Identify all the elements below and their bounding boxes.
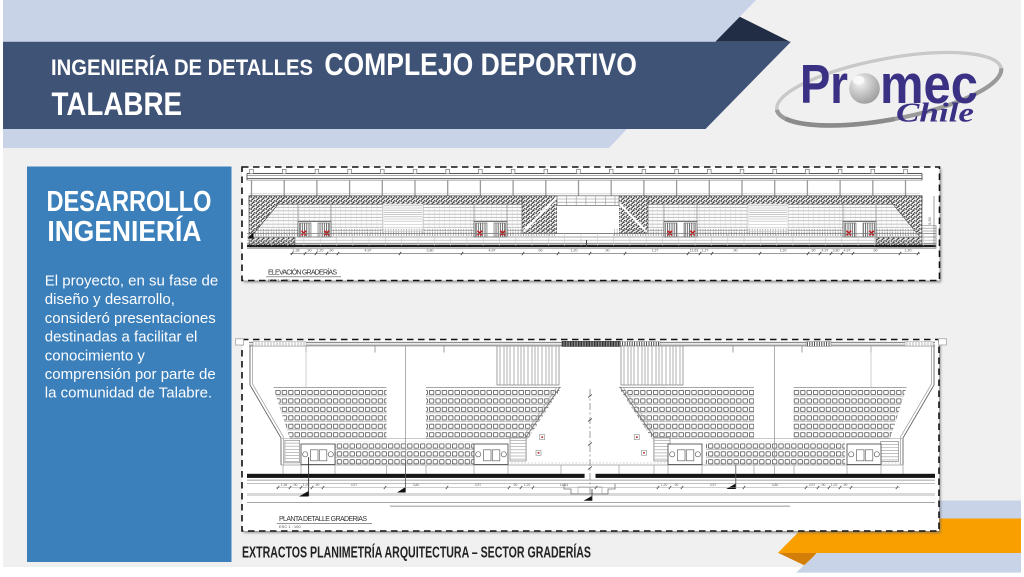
svg-text:conocimiento y: conocimiento y (45, 347, 146, 364)
svg-text:.90: .90 (307, 249, 312, 253)
svg-text:1,20: 1,20 (831, 483, 838, 487)
svg-text:3,80: 3,80 (833, 249, 840, 253)
svg-text:PLANTA DETALLE GRADERIAS: PLANTA DETALLE GRADERIAS (279, 516, 367, 523)
svg-text:.90: .90 (329, 249, 334, 253)
svg-text:.90: .90 (674, 483, 679, 487)
svg-text:1,27: 1,27 (702, 249, 709, 253)
svg-text:4,97: 4,97 (351, 483, 358, 487)
svg-text:.90: .90 (733, 249, 738, 253)
svg-text:COMPLEJO DEPORTIVO: COMPLEJO DEPORTIVO (324, 46, 637, 82)
svg-text:3,80: 3,80 (427, 249, 434, 253)
svg-text:4,97: 4,97 (710, 483, 717, 487)
svg-text:1,20: 1,20 (905, 249, 912, 253)
svg-text:11,63: 11,63 (690, 249, 699, 253)
svg-text:.90: .90 (293, 483, 298, 487)
svg-text:1,27: 1,27 (652, 249, 659, 253)
svg-text:INGENIERÍA DE DETALLES: INGENIERÍA DE DETALLES (51, 55, 313, 80)
svg-text:EXTRACTOS PLANIMETRÍA ARQUITEC: EXTRACTOS PLANIMETRÍA ARQUITECTURA – SEC… (242, 543, 591, 562)
svg-text:El proyecto, en su fase de: El proyecto, en su fase de (45, 273, 218, 290)
svg-text:1,20: 1,20 (780, 249, 787, 253)
svg-text:.90: .90 (538, 249, 543, 253)
svg-text:diseño y desarrollo,: diseño y desarrollo, (45, 291, 175, 308)
svg-text:1,20: 1,20 (303, 483, 310, 487)
svg-text:1,20: 1,20 (524, 483, 531, 487)
svg-text:4,97: 4,97 (489, 249, 496, 253)
svg-text:1,38: 1,38 (281, 483, 288, 487)
svg-text:1,20: 1,20 (661, 483, 668, 487)
svg-text:1,38: 1,38 (293, 249, 300, 253)
svg-text:1,20: 1,20 (571, 249, 578, 253)
svg-text:.90: .90 (605, 249, 610, 253)
svg-text:INGENIERÍA: INGENIERÍA (47, 216, 201, 248)
svg-text:11,63: 11,63 (560, 483, 568, 487)
svg-text:ESC 1 : 100: ESC 1 : 100 (268, 278, 290, 283)
svg-text:Chile: Chile (896, 98, 974, 128)
svg-text:4,97: 4,97 (475, 483, 482, 487)
svg-text:Pr: Pr (800, 53, 848, 115)
svg-text:4,97: 4,97 (844, 249, 851, 253)
svg-text:consideró presentaciones: consideró presentaciones (45, 310, 216, 327)
svg-text:4,97: 4,97 (822, 249, 829, 253)
svg-text:.90: .90 (811, 249, 816, 253)
svg-text:.90: .90 (843, 483, 848, 487)
svg-text:.90: .90 (315, 483, 320, 487)
svg-text:TALABRE: TALABRE (52, 86, 183, 122)
svg-text:.90: .90 (873, 249, 878, 253)
svg-text:.90: .90 (513, 483, 518, 487)
svg-text:5,50: 5,50 (928, 217, 932, 224)
svg-text:3,80: 3,80 (413, 483, 420, 487)
svg-text:4,97: 4,97 (809, 483, 816, 487)
svg-text:DESARROLLO: DESARROLLO (47, 186, 212, 218)
svg-text:.90: .90 (821, 483, 826, 487)
svg-text:comprensión por parte de: comprensión por parte de (45, 366, 216, 383)
svg-text:1,20: 1,20 (317, 249, 324, 253)
svg-text:3,80: 3,80 (772, 483, 779, 487)
svg-text:ELEVACIÓN GRADERÍAS: ELEVACIÓN GRADERÍAS (268, 268, 337, 277)
svg-text:la comunidad de Talabre.: la comunidad de Talabre. (45, 385, 212, 402)
svg-text:destinadas a facilitar el: destinadas a facilitar el (45, 329, 198, 346)
svg-text:4,97: 4,97 (365, 249, 372, 253)
svg-text:ESC 1 : 100: ESC 1 : 100 (279, 524, 301, 529)
